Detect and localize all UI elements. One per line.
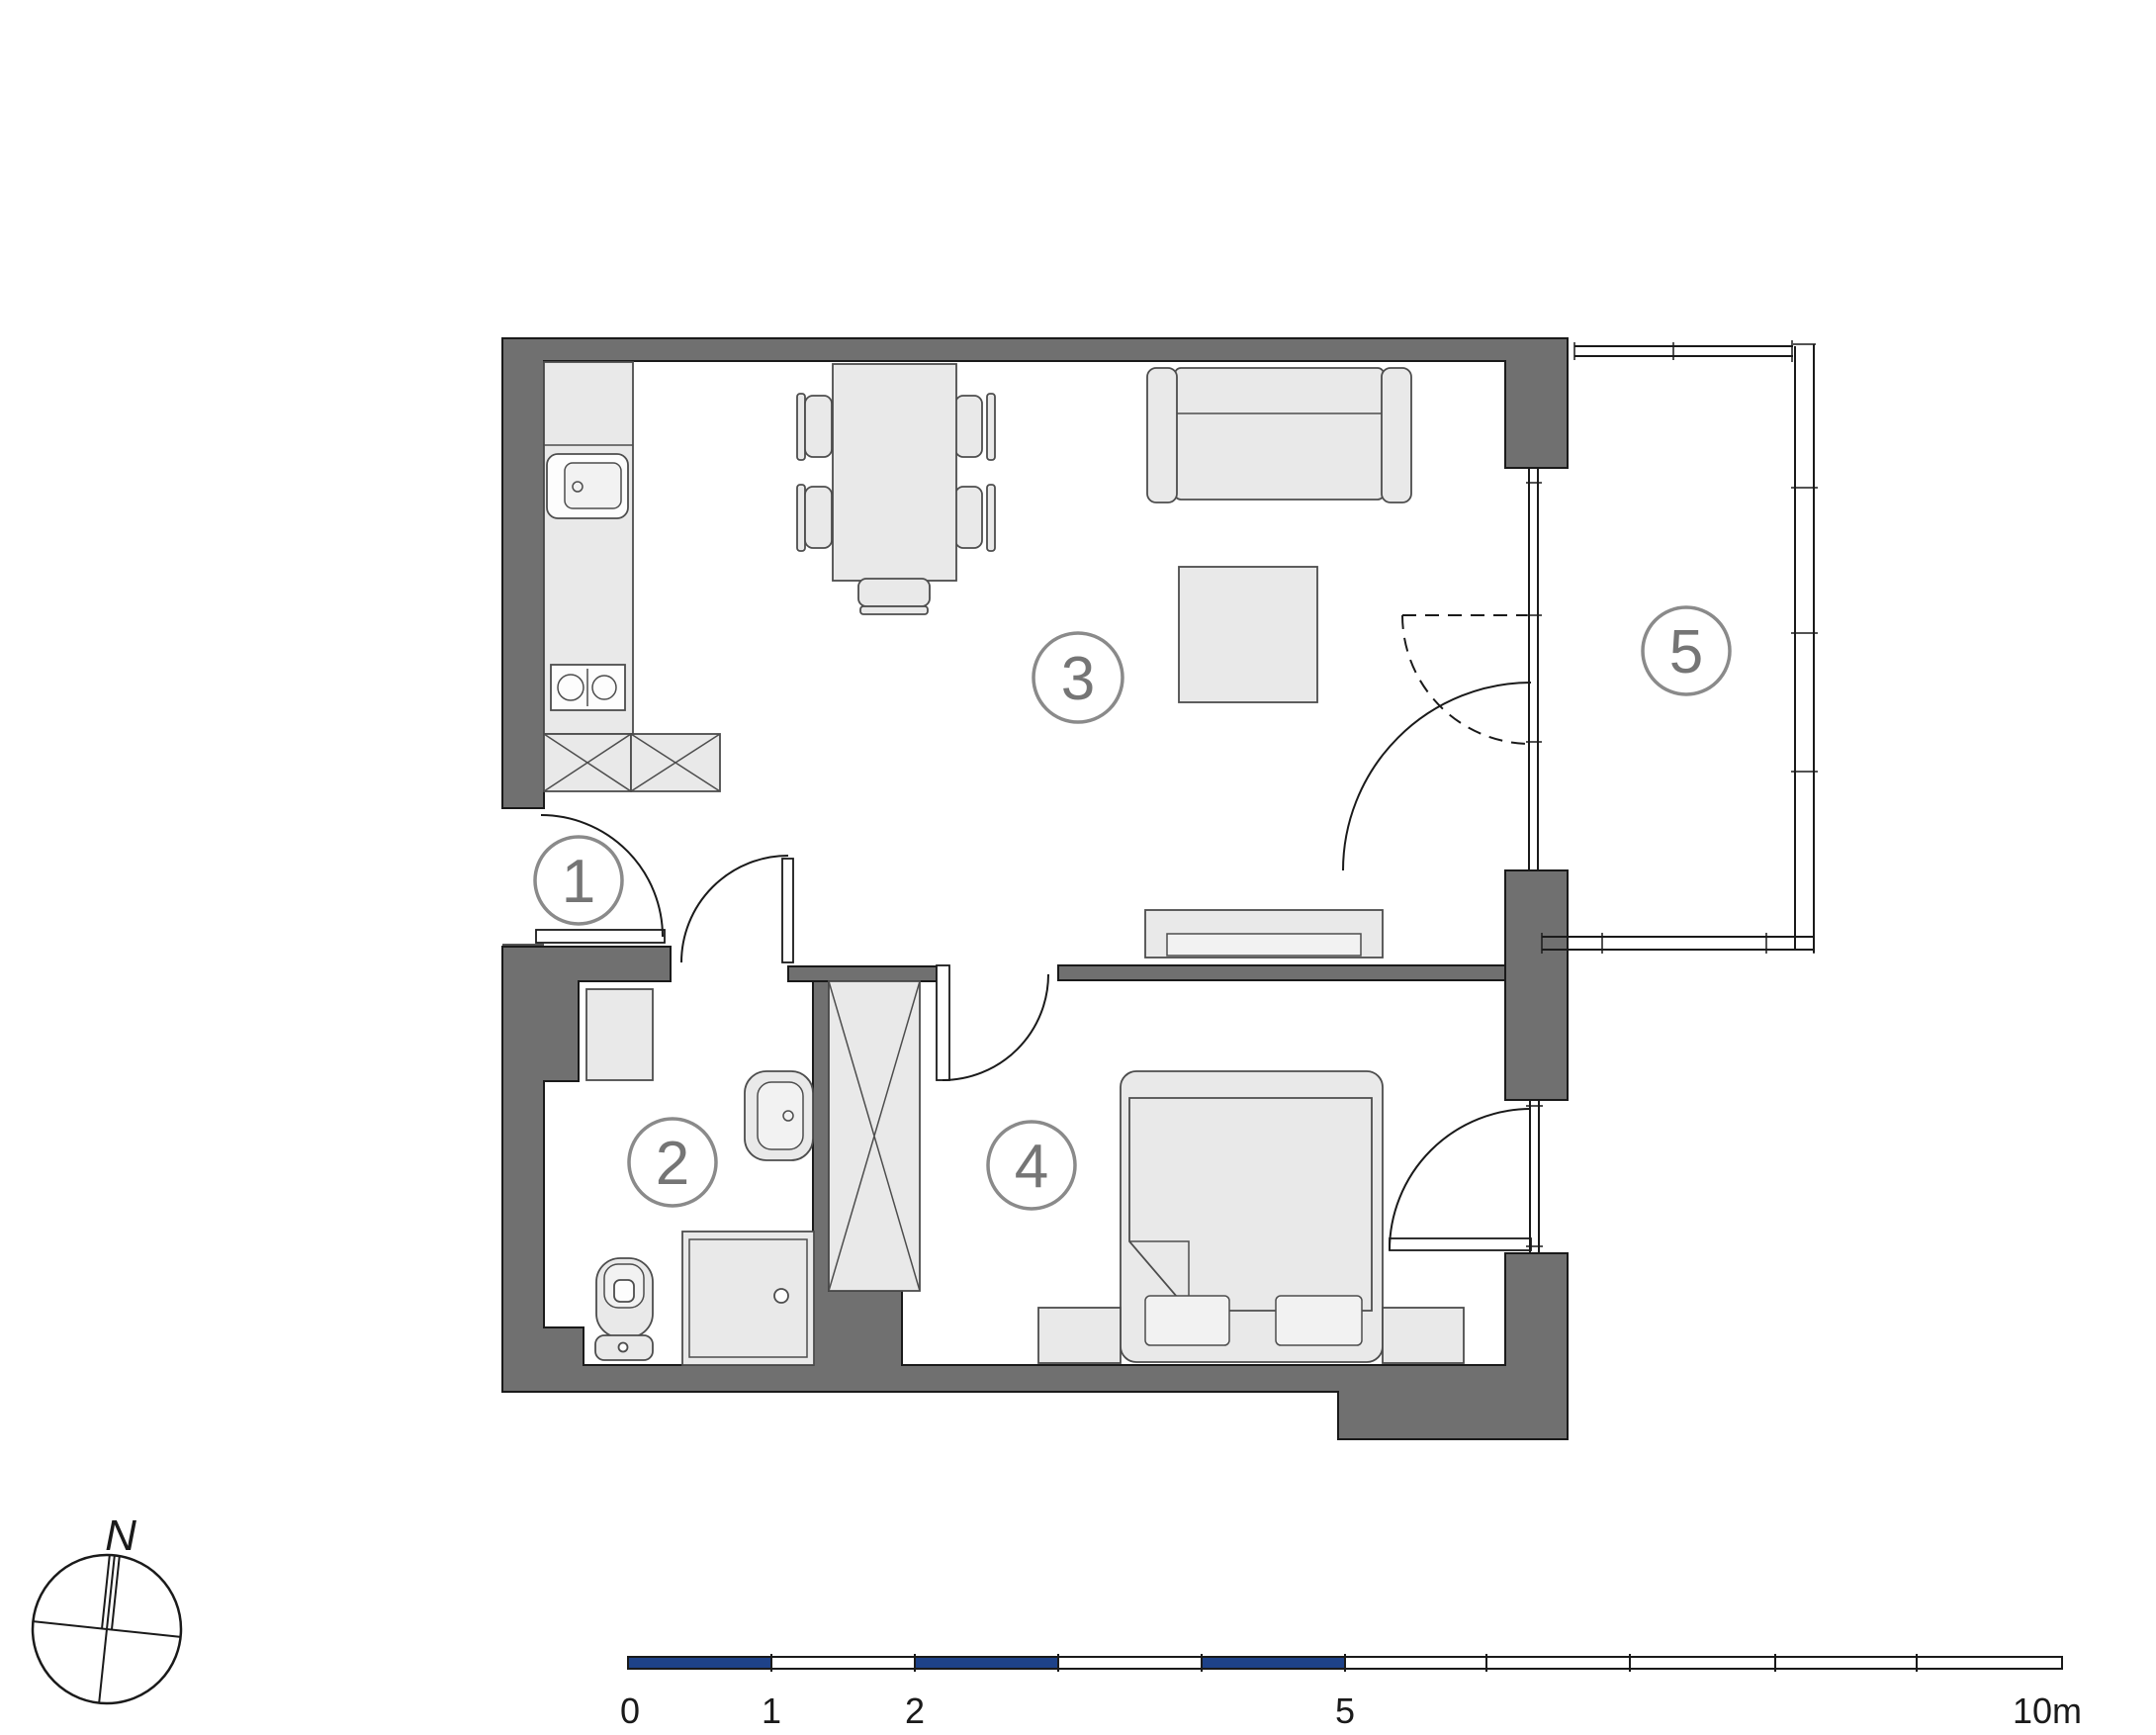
floor-plan-drawing: 1 2 3 4 5 N 0 1 2 5 10m — [0, 0, 2156, 1735]
north-label: N — [105, 1511, 136, 1560]
living-room-window — [1526, 468, 1542, 870]
wardrobe — [829, 981, 920, 1291]
room-number-1: 1 — [562, 848, 595, 916]
floor-plan-page: 1 2 3 4 5 N 0 1 2 5 10m — [0, 0, 2156, 1735]
wall-partition-hall — [788, 966, 937, 981]
compass-icon: N — [26, 1511, 189, 1710]
washbasin — [745, 1071, 813, 1160]
room-label-4: 4 — [988, 1122, 1075, 1209]
scale-label-2: 2 — [905, 1690, 925, 1731]
shower — [682, 1232, 814, 1365]
room-label-2: 2 — [629, 1119, 716, 1206]
scale-bar: 0 1 2 5 10m — [620, 1654, 2082, 1731]
bathroom-door — [681, 856, 793, 962]
mattress — [1129, 1098, 1372, 1311]
dining-chair — [955, 485, 995, 551]
toilet — [595, 1258, 653, 1360]
pillow — [1145, 1296, 1229, 1345]
bedroom-door-opening-caps — [937, 965, 1058, 980]
kitchen-cabinet-x-left — [544, 734, 631, 791]
room-number-4: 4 — [1015, 1133, 1048, 1201]
room-label-1: 1 — [535, 837, 622, 924]
coffee-table — [1179, 567, 1317, 702]
dining-chair — [955, 394, 995, 460]
wall-partition-bedroom — [1058, 965, 1505, 980]
wall-right-middle-column — [1505, 870, 1568, 1100]
kitchen-sink — [547, 454, 628, 518]
bedroom-door — [937, 965, 1048, 1080]
tv-console — [1145, 910, 1383, 958]
scale-label-10m: 10m — [2013, 1690, 2082, 1731]
pillow — [1276, 1296, 1362, 1345]
walls — [502, 338, 1568, 1439]
cooktop — [551, 665, 625, 710]
kitchen-cabinet-x-right — [631, 734, 720, 791]
washing-machine — [586, 989, 653, 1080]
room-label-5: 5 — [1643, 607, 1730, 694]
scale-segment-blue — [629, 1658, 770, 1668]
dining-set — [797, 364, 995, 614]
dining-chair — [797, 485, 832, 551]
scale-label-1: 1 — [762, 1690, 781, 1731]
dining-chair — [858, 579, 930, 614]
room-label-3: 3 — [1033, 633, 1123, 722]
nightstand-left — [1038, 1308, 1121, 1363]
dining-chair — [797, 394, 832, 460]
bath-door-opening-caps — [671, 947, 788, 981]
scale-segment-blue — [916, 1658, 1057, 1668]
bedroom-french-door — [1390, 1109, 1531, 1250]
sofa — [1147, 368, 1411, 502]
double-bed — [1121, 1071, 1383, 1362]
bedroom-window — [1526, 1100, 1543, 1253]
room-number-5: 5 — [1669, 618, 1703, 686]
room-number-2: 2 — [656, 1130, 689, 1198]
scale-label-0: 0 — [620, 1690, 640, 1731]
balcony-door — [1343, 615, 1531, 870]
dining-table — [833, 364, 956, 581]
kitchen — [544, 362, 720, 791]
room-number-3: 3 — [1061, 645, 1095, 713]
scale-label-5: 5 — [1335, 1690, 1355, 1731]
nightstand-right — [1383, 1308, 1464, 1363]
scale-segment-blue — [1203, 1658, 1344, 1668]
